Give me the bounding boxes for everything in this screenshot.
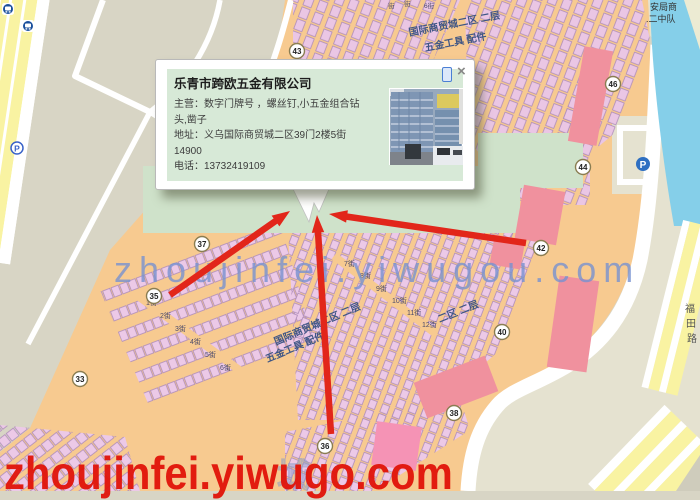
svg-text:10街: 10街	[392, 296, 407, 305]
svg-text:11街: 11街	[407, 308, 421, 317]
svg-text:3街: 3街	[175, 324, 186, 333]
svg-text:路: 路	[687, 332, 697, 345]
svg-text:37: 37	[198, 240, 207, 249]
svg-text:福: 福	[685, 302, 695, 315]
svg-text:5街: 5街	[205, 350, 216, 359]
svg-text:安局商: 安局商	[650, 1, 677, 12]
svg-text:6街: 6街	[220, 363, 231, 372]
svg-text:.二中队: .二中队	[646, 13, 676, 24]
svg-text:zhoujinfei.yiwugou.com: zhoujinfei.yiwugou.com	[114, 249, 640, 290]
svg-text:6街: 6街	[424, 1, 435, 10]
svg-text:40: 40	[498, 328, 507, 337]
svg-text:2街: 2街	[160, 311, 171, 320]
svg-text:街: 街	[388, 1, 395, 10]
svg-text:38: 38	[450, 409, 459, 418]
svg-text:44: 44	[579, 163, 588, 172]
svg-text:35: 35	[150, 292, 159, 301]
svg-text:田: 田	[686, 319, 696, 330]
svg-text:46: 46	[609, 80, 618, 89]
svg-text:P: P	[640, 160, 647, 171]
svg-text:街: 街	[404, 0, 411, 8]
svg-text:P: P	[14, 144, 20, 154]
svg-text:33: 33	[76, 375, 85, 384]
svg-text:43: 43	[293, 47, 302, 56]
svg-text:12街: 12街	[422, 320, 437, 329]
svg-text:4街: 4街	[190, 337, 201, 346]
